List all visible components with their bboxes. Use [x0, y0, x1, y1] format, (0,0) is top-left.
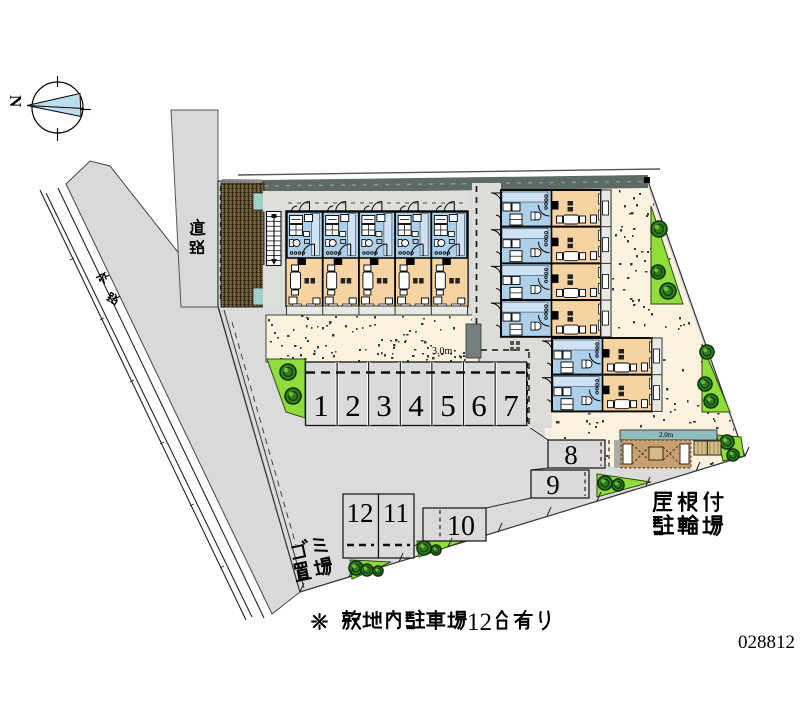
svg-text:3.0m: 3.0m [432, 346, 453, 357]
svg-text:10: 10 [447, 511, 475, 542]
svg-text:3: 3 [376, 388, 392, 423]
svg-text:N: N [6, 95, 25, 108]
svg-text:028812: 028812 [738, 632, 795, 653]
svg-text:11: 11 [383, 498, 409, 528]
svg-text:5: 5 [440, 388, 456, 423]
svg-text:2.0m: 2.0m [659, 431, 674, 439]
svg-text:2: 2 [345, 388, 361, 423]
svg-text:12: 12 [467, 609, 492, 636]
svg-text:4: 4 [408, 388, 424, 423]
svg-text:9: 9 [546, 470, 560, 500]
svg-text:1: 1 [313, 388, 329, 423]
svg-text:7: 7 [503, 388, 519, 423]
svg-text:12: 12 [347, 498, 374, 528]
svg-text:6: 6 [471, 388, 487, 423]
svg-text:8: 8 [564, 440, 578, 470]
